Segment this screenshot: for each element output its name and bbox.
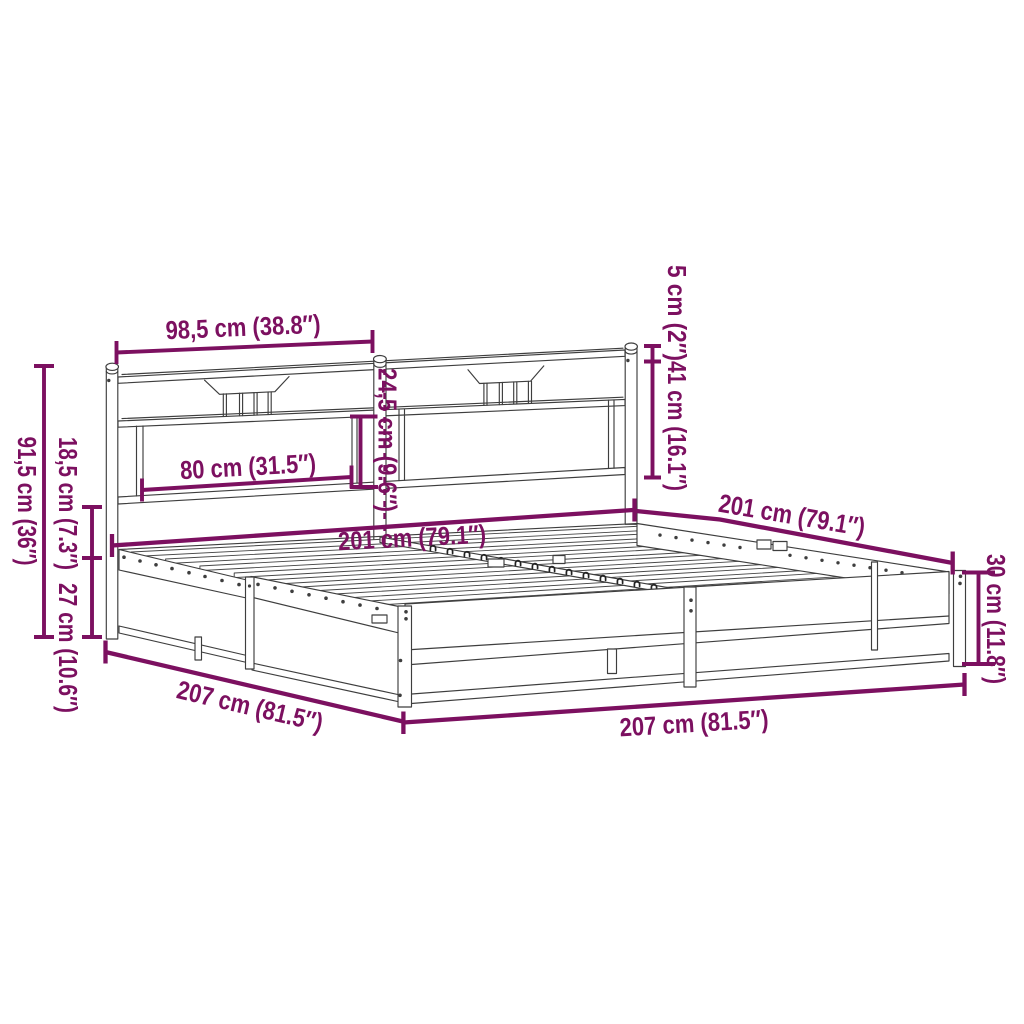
svg-text:27 cm (10.6″): 27 cm (10.6″) xyxy=(53,583,83,713)
svg-text:5 cm (2″): 5 cm (2″) xyxy=(662,265,692,361)
svg-text:24,5 cm (9.6″): 24,5 cm (9.6″) xyxy=(373,368,403,512)
svg-text:18,5 cm (7.3″): 18,5 cm (7.3″) xyxy=(53,437,83,570)
svg-text:91,5 cm (36″): 91,5 cm (36″) xyxy=(12,437,42,566)
svg-text:30 cm (11.8″): 30 cm (11.8″) xyxy=(981,554,1011,684)
svg-text:41 cm (16.1″): 41 cm (16.1″) xyxy=(662,361,692,491)
